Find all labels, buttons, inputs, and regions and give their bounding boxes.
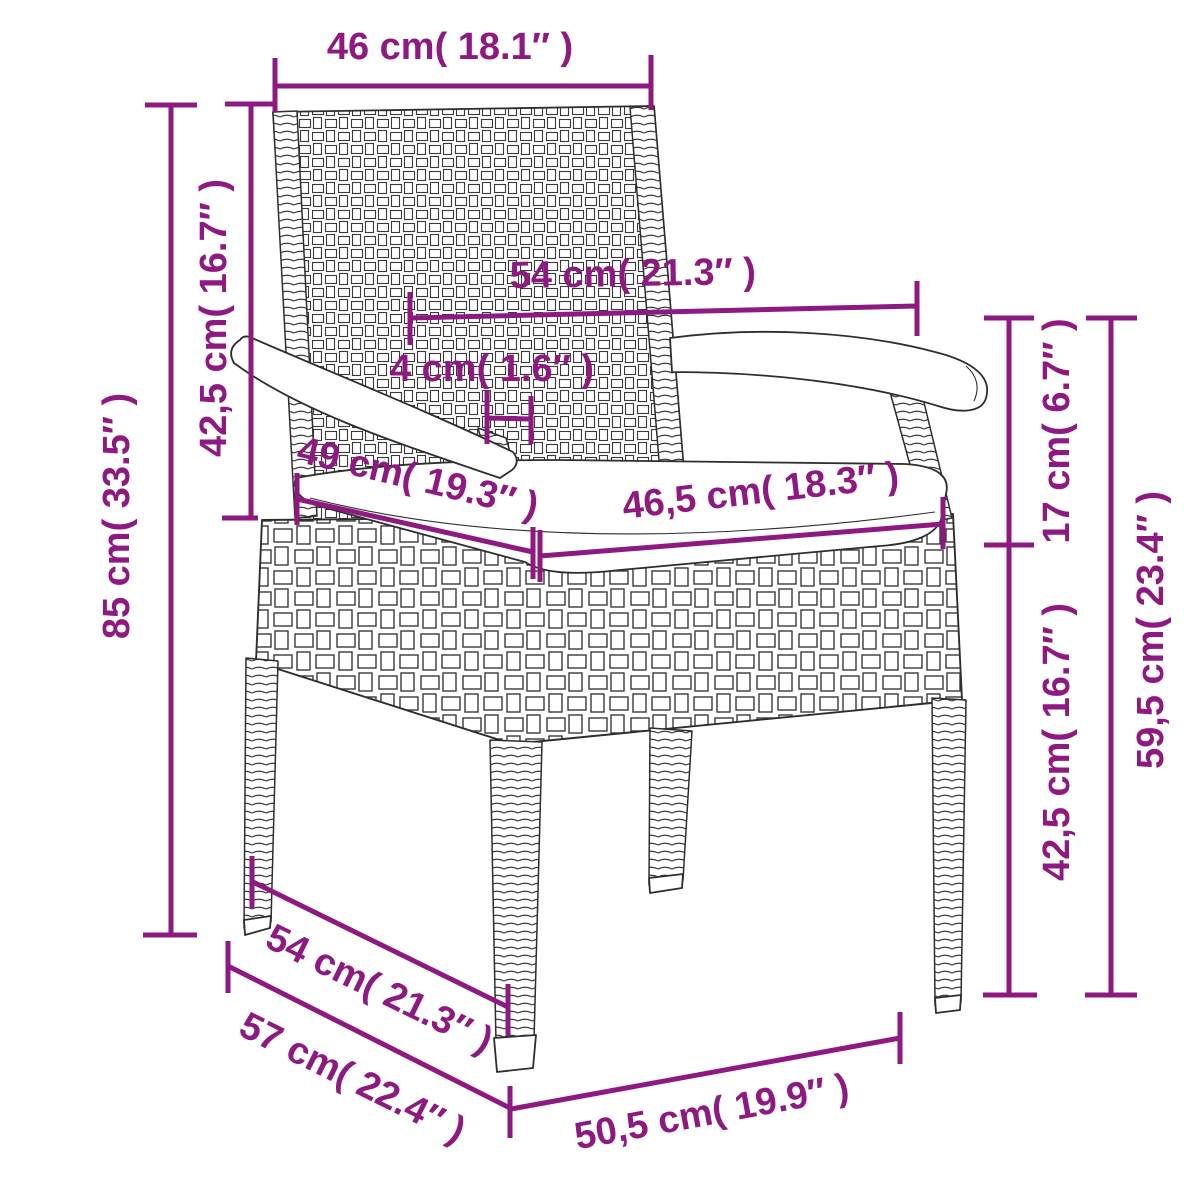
chair-front-leg <box>490 740 542 1043</box>
dim-label-total-height-left: 85 cm( 33.5″ ) <box>96 393 138 639</box>
dim-label-arm-to-seat-right: 17 cm( 6.7″ ) <box>1036 318 1078 543</box>
dim-label-backrest-top-width: 46 cm( 18.1″ ) <box>327 26 573 68</box>
chair-front-leg-cap <box>494 1035 536 1072</box>
chair-right-leg <box>932 698 966 1005</box>
dim-label-armrest-bar-width: 4 cm( 1.6″ ) <box>390 348 594 390</box>
dim-label-backrest-height-left: 42,5 cm( 16.7″ ) <box>193 179 235 457</box>
dim-label-armrest-height-right: 59,5 cm( 23.4″ ) <box>1130 491 1172 769</box>
dim-label-seat-height-right: 42,5 cm( 16.7″ ) <box>1036 603 1078 881</box>
chair-dimension-diagram: 46 cm( 18.1″ ) 85 cm( 33.5″ ) 42,5 cm( 1… <box>0 0 1200 1200</box>
dim-label-armrest-span-middle: 54 cm( 21.3″ ) <box>509 251 756 297</box>
chair-right-leg-cap <box>935 995 961 1013</box>
